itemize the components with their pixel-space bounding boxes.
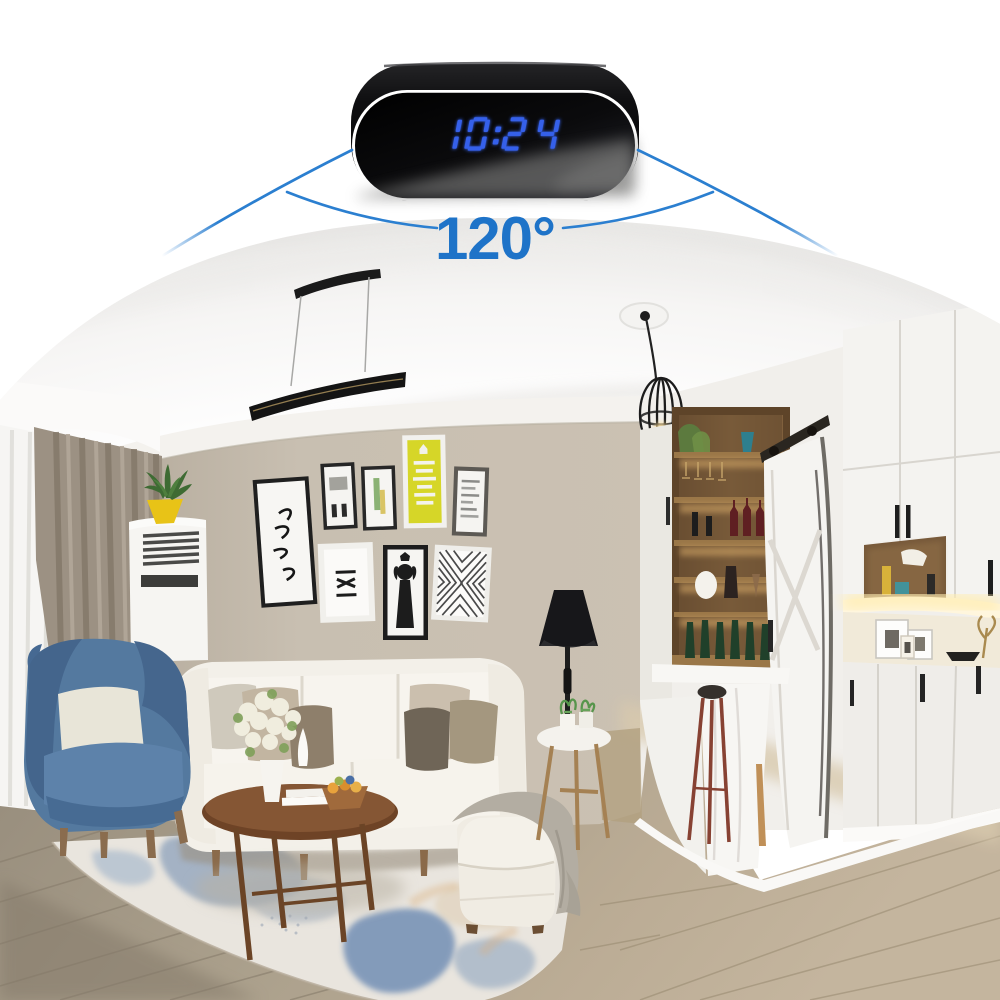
svg-text:120°: 120° <box>435 205 555 272</box>
